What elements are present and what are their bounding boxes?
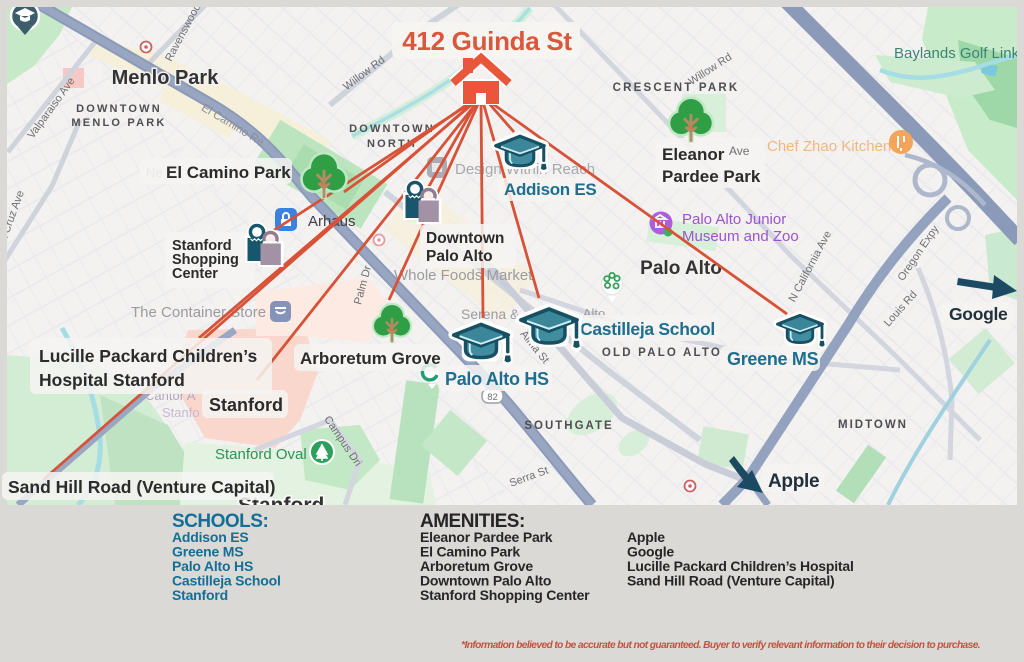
- svg-text:CRESCENT PARK: CRESCENT PARK: [613, 82, 740, 94]
- svg-text:Ave: Ave: [729, 144, 750, 158]
- svg-text:Addison ES: Addison ES: [504, 180, 596, 199]
- svg-text:Stanford Oval: Stanford Oval: [215, 446, 307, 463]
- svg-text:Downtown: Downtown: [426, 230, 504, 247]
- svg-text:Palo Alto: Palo Alto: [426, 248, 493, 265]
- svg-text:Sand Hill Road (Venture Capita: Sand Hill Road (Venture Capital): [8, 477, 275, 497]
- svg-text:Baylands Golf Link: Baylands Golf Link: [894, 45, 1020, 62]
- svg-text:The Container Store: The Container Store: [131, 304, 266, 321]
- svg-text:El Camino Park: El Camino Park: [166, 163, 291, 182]
- svg-text:Center: Center: [172, 266, 218, 282]
- svg-text:Eleanor: Eleanor: [662, 145, 725, 164]
- svg-text:Arboretum Grove: Arboretum Grove: [300, 349, 441, 368]
- svg-text:OLD PALO ALTO: OLD PALO ALTO: [602, 347, 722, 359]
- svg-text:Stanford: Stanford: [172, 587, 228, 603]
- svg-text:412 Guinda St: 412 Guinda St: [402, 26, 572, 56]
- svg-text:Palo Alto Junior: Palo Alto Junior: [682, 211, 786, 228]
- svg-text:*Information believed to be ac: *Information believed to be accurate but…: [461, 640, 980, 651]
- svg-text:Serena &: Serena &: [461, 306, 520, 322]
- svg-text:82: 82: [487, 392, 498, 403]
- svg-text:Sand Hill Road (Venture Capita: Sand Hill Road (Venture Capital): [627, 573, 835, 589]
- svg-text:Hospital Stanford: Hospital Stanford: [39, 370, 185, 390]
- svg-text:Stanfo: Stanfo: [162, 405, 200, 420]
- svg-text:Museum and Zoo: Museum and Zoo: [682, 228, 799, 245]
- svg-text:Chef Zhao Kitchen: Chef Zhao Kitchen: [767, 138, 891, 155]
- svg-text:Stanford: Stanford: [209, 395, 283, 415]
- svg-text:Apple: Apple: [768, 471, 819, 492]
- svg-text:Palo Alto HS: Palo Alto HS: [445, 369, 549, 389]
- svg-text:Google: Google: [949, 304, 1008, 324]
- svg-text:Lucille Packard Children’s: Lucille Packard Children’s: [39, 346, 257, 366]
- svg-text:Palo Alto: Palo Alto: [640, 258, 722, 279]
- svg-text:Pardee Park: Pardee Park: [662, 167, 761, 186]
- svg-text:MIDTOWN: MIDTOWN: [838, 419, 908, 431]
- svg-text:Castilleja School: Castilleja School: [580, 319, 715, 339]
- svg-text:SOUTHGATE: SOUTHGATE: [524, 420, 613, 432]
- svg-text:MENLO PARK: MENLO PARK: [71, 117, 166, 129]
- svg-text:Whole Foods Market: Whole Foods Market: [394, 267, 533, 284]
- svg-text:Stanford Shopping Center: Stanford Shopping Center: [420, 587, 590, 603]
- svg-text:DOWNTOWN: DOWNTOWN: [76, 103, 162, 115]
- svg-text:Menlo Park: Menlo Park: [112, 67, 220, 89]
- svg-text:Greene MS: Greene MS: [727, 349, 819, 369]
